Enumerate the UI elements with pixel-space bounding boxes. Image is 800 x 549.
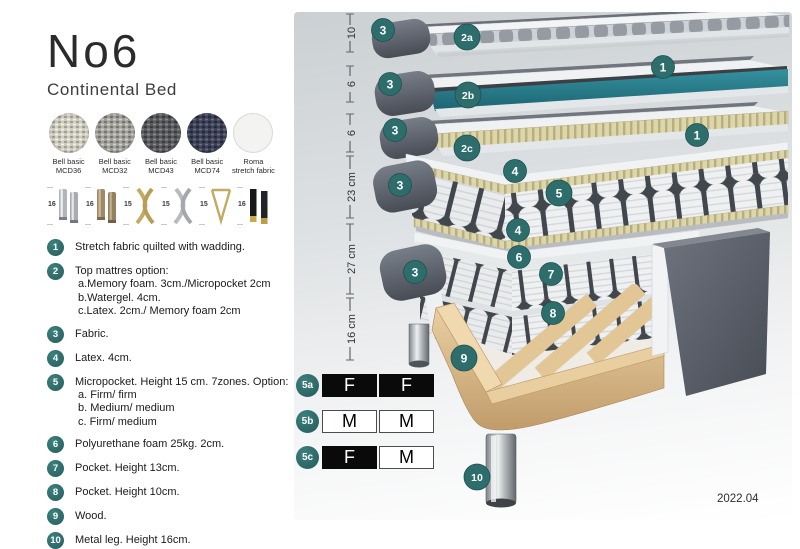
firmness-cell: M [379,446,434,469]
svg-text:3: 3 [392,123,399,137]
feature-item: 10Metal leg. Height 16cm. [47,533,292,549]
marker-9: 9 [451,345,477,371]
svg-text:10: 10 [471,472,483,484]
marker-3: 3 [384,119,407,142]
firmness-cell: M [322,410,377,433]
firmness-badge: 5c [296,446,319,469]
marker-4: 4 [507,219,530,242]
feature-text: Metal leg. Height 16cm. [75,533,191,547]
firmness-cell: F [322,374,377,397]
svg-text:3: 3 [387,77,394,91]
dimension-ruler: 106623 cm27 cm16 cm [346,14,358,360]
svg-text:2c: 2c [461,143,473,155]
svg-text:2b: 2b [462,90,474,102]
footer-version: 2022.04 [717,493,759,505]
svg-text:4: 4 [515,223,522,237]
marker-7: 7 [540,263,563,286]
marker-2b: 2b [455,82,481,108]
firmness-row: 5bMM [296,410,436,433]
feature-line: Metal leg. Height 16cm. [75,533,191,547]
metal-leg-front [486,434,516,508]
marker-6: 6 [508,246,531,269]
marker-10: 10 [464,464,490,490]
svg-text:3: 3 [412,265,419,279]
dimension-label: 16 cm [346,314,358,344]
marker-5: 5 [546,180,572,206]
svg-text:3: 3 [397,178,404,192]
firmness-cell: F [322,446,377,469]
svg-text:5: 5 [556,186,563,200]
svg-text:1: 1 [694,128,701,142]
marker-2a: 2a [454,24,480,50]
firmness-cell: M [379,410,434,433]
svg-text:1: 1 [660,60,667,74]
marker-8: 8 [542,302,565,325]
marker-3: 3 [379,73,402,96]
marker-3: 3 [372,19,395,42]
marker-3: 3 [404,261,427,284]
dimension-label: 6 [346,81,358,87]
svg-text:4: 4 [512,164,519,178]
svg-text:8: 8 [550,306,557,320]
marker-1: 1 [686,124,709,147]
marker-4: 4 [504,160,527,183]
firmness-badge: 5a [296,374,319,397]
marker-2c: 2c [454,135,480,161]
svg-text:2a: 2a [461,32,473,44]
marker-1: 1 [652,56,675,79]
layer-2a [370,7,789,60]
dimension-label: 27 cm [346,244,358,274]
fabric-covered-block [652,228,770,396]
dimension-label: 6 [346,130,358,136]
firmness-row: 5aFF [296,374,436,397]
feature-number-badge: 10 [47,532,64,549]
marker-3: 3 [389,174,412,197]
dimension-label: 23 cm [346,172,358,202]
svg-text:6: 6 [516,250,523,264]
white-corner-post [652,244,668,356]
firmness-cell: F [379,374,434,397]
svg-text:9: 9 [461,351,468,365]
svg-text:7: 7 [548,267,555,281]
firmness-badge: 5b [296,410,319,433]
svg-text:3: 3 [380,23,387,37]
metal-leg-back [409,324,429,368]
dimension-label: 10 [346,27,358,39]
firmness-row: 5cFM [296,446,436,469]
